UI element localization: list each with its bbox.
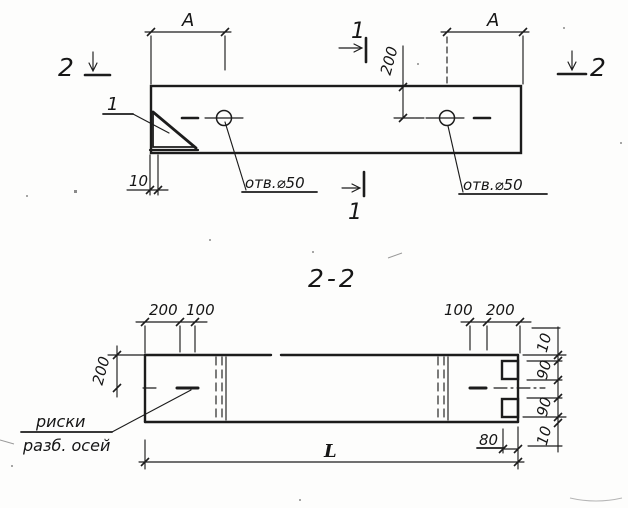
- end-notch-upper: [502, 361, 518, 379]
- dim-hole-offset-label: 200: [377, 45, 402, 77]
- dim-span-left: А: [145, 10, 231, 84]
- section-mark-2-right-label: 2: [590, 53, 606, 82]
- section-mark-2-left-label: 2: [58, 53, 74, 82]
- dim-chamfer: 10: [127, 155, 168, 195]
- hole-callout-left-label: отв.⌀50: [245, 174, 305, 192]
- detail-ref-1: 1: [103, 94, 169, 133]
- section-view-title: 2-2: [308, 264, 358, 293]
- dim-right-90-upper: 90: [533, 358, 555, 381]
- dim-length: L: [139, 427, 524, 469]
- dim-length-label: L: [323, 441, 337, 462]
- plan-beam-outline: [151, 86, 521, 153]
- dim-top-left-100: 100: [186, 301, 215, 319]
- hole-callout-right-label: отв.⌀50: [463, 176, 523, 194]
- section-view: 2-2: [21, 264, 566, 469]
- dim-chamfer-label: 10: [129, 172, 148, 190]
- dim-span-right-label: А: [486, 10, 499, 31]
- hole-callout-right: отв.⌀50: [448, 126, 547, 194]
- section-mark-1-top-label: 1: [351, 19, 365, 44]
- axis-note-line1: риски: [35, 412, 85, 431]
- dim-top-right-100: 100: [444, 301, 473, 319]
- section-mark-1-bottom-label: 1: [348, 200, 362, 225]
- dim-right-10-bottom: 10: [533, 424, 555, 447]
- section-beam-outline: [145, 355, 518, 422]
- hidden-hole-lines-left: [216, 357, 226, 420]
- dim-end-80: 80: [477, 429, 522, 453]
- dim-end-80-label: 80: [479, 431, 498, 449]
- dim-top-left-200: 200: [149, 301, 178, 319]
- hole-marker-left: [182, 111, 243, 126]
- dim-right-10-top: 10: [533, 331, 555, 354]
- dim-top-left: 200 100: [136, 301, 215, 353]
- hole-marker-right: [426, 111, 490, 126]
- drawing-sheet: 1 отв.⌀50 отв.⌀50: [0, 0, 628, 508]
- dim-span-right: А: [441, 10, 529, 84]
- dim-hole-offset: 200: [377, 45, 424, 122]
- section-mark-2-left: 2: [58, 52, 110, 82]
- hidden-hole-lines-right: [438, 357, 448, 420]
- dim-right-chain: 10 90 90 10: [523, 327, 566, 452]
- end-notch-lower: [502, 399, 518, 417]
- dim-span-left-label: А: [181, 10, 194, 31]
- plan-view: 1 отв.⌀50 отв.⌀50: [58, 10, 606, 225]
- dim-left-side: 200: [89, 346, 144, 397]
- section-mark-2-right: 2: [558, 51, 606, 82]
- axis-note-line2: разб. осей: [22, 436, 110, 455]
- section-mark-1-bottom: 1: [342, 172, 364, 225]
- dim-top-right: 100 200: [444, 301, 531, 353]
- detail-ref-label: 1: [107, 94, 118, 115]
- hole-callout-left: отв.⌀50: [225, 122, 317, 192]
- dim-left-side-label: 200: [89, 355, 114, 387]
- section-mark-1-top: 1: [339, 19, 366, 62]
- dim-right-90-lower: 90: [533, 395, 555, 418]
- beam-drawing: 1 отв.⌀50 отв.⌀50: [0, 0, 628, 508]
- dim-top-right-200: 200: [486, 301, 515, 319]
